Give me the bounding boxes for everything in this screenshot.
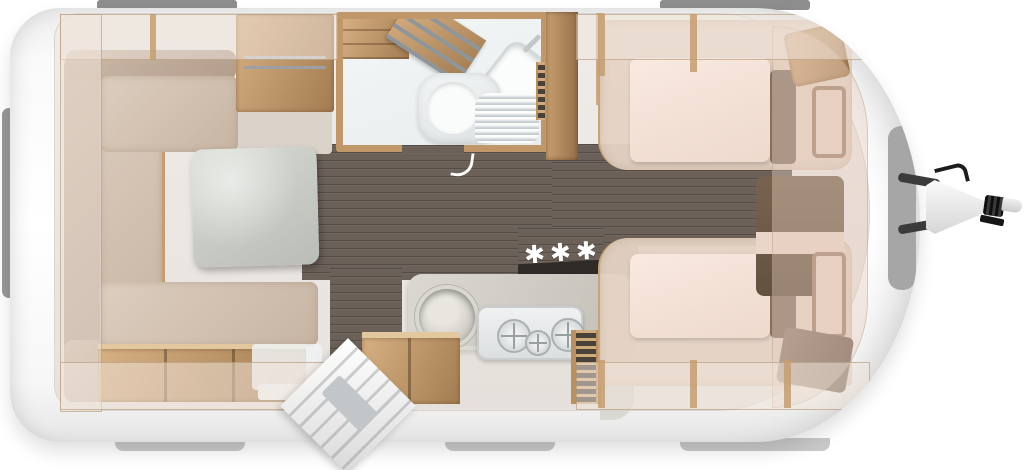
kitchen-hob <box>477 306 583 360</box>
bed-bottom-mattress <box>630 254 770 338</box>
locker-divider <box>690 360 697 408</box>
bed-top-mattress <box>630 58 770 162</box>
caravan-floorplan-image: ✱✱✱ <box>0 0 1024 470</box>
hitch-cover <box>926 180 988 234</box>
hob-burner-icon <box>525 330 551 356</box>
overhead-locker-lounge-left <box>60 14 102 412</box>
overhead-locker-bedroom-top <box>576 14 870 60</box>
locker-divider <box>150 14 156 60</box>
front-overhead-locker <box>772 26 868 408</box>
toilet-seat <box>427 82 479 134</box>
lounge-seat-bottom <box>100 282 318 346</box>
tall-cabinet <box>546 12 578 160</box>
heating-indicator: ✱✱✱ <box>523 235 603 269</box>
locker-divider <box>690 14 697 72</box>
locker-divider <box>598 14 605 76</box>
caravan-body-shell: ✱✱✱ <box>10 8 920 442</box>
washroom <box>336 12 548 152</box>
lounge-seat-top <box>100 76 238 152</box>
shower-tray <box>475 93 539 143</box>
locker-divider <box>784 360 791 408</box>
wardrobe-rail <box>244 66 326 69</box>
lounge-table <box>190 146 319 267</box>
handbrake-lever-icon <box>934 161 970 188</box>
heater-grille-top <box>536 62 547 120</box>
entrance-door-step <box>321 375 378 432</box>
front-window-icon <box>888 126 916 290</box>
locker-divider <box>598 360 605 408</box>
coupling-tip <box>1001 198 1023 214</box>
overhead-locker-bedroom-bottom <box>576 362 870 410</box>
